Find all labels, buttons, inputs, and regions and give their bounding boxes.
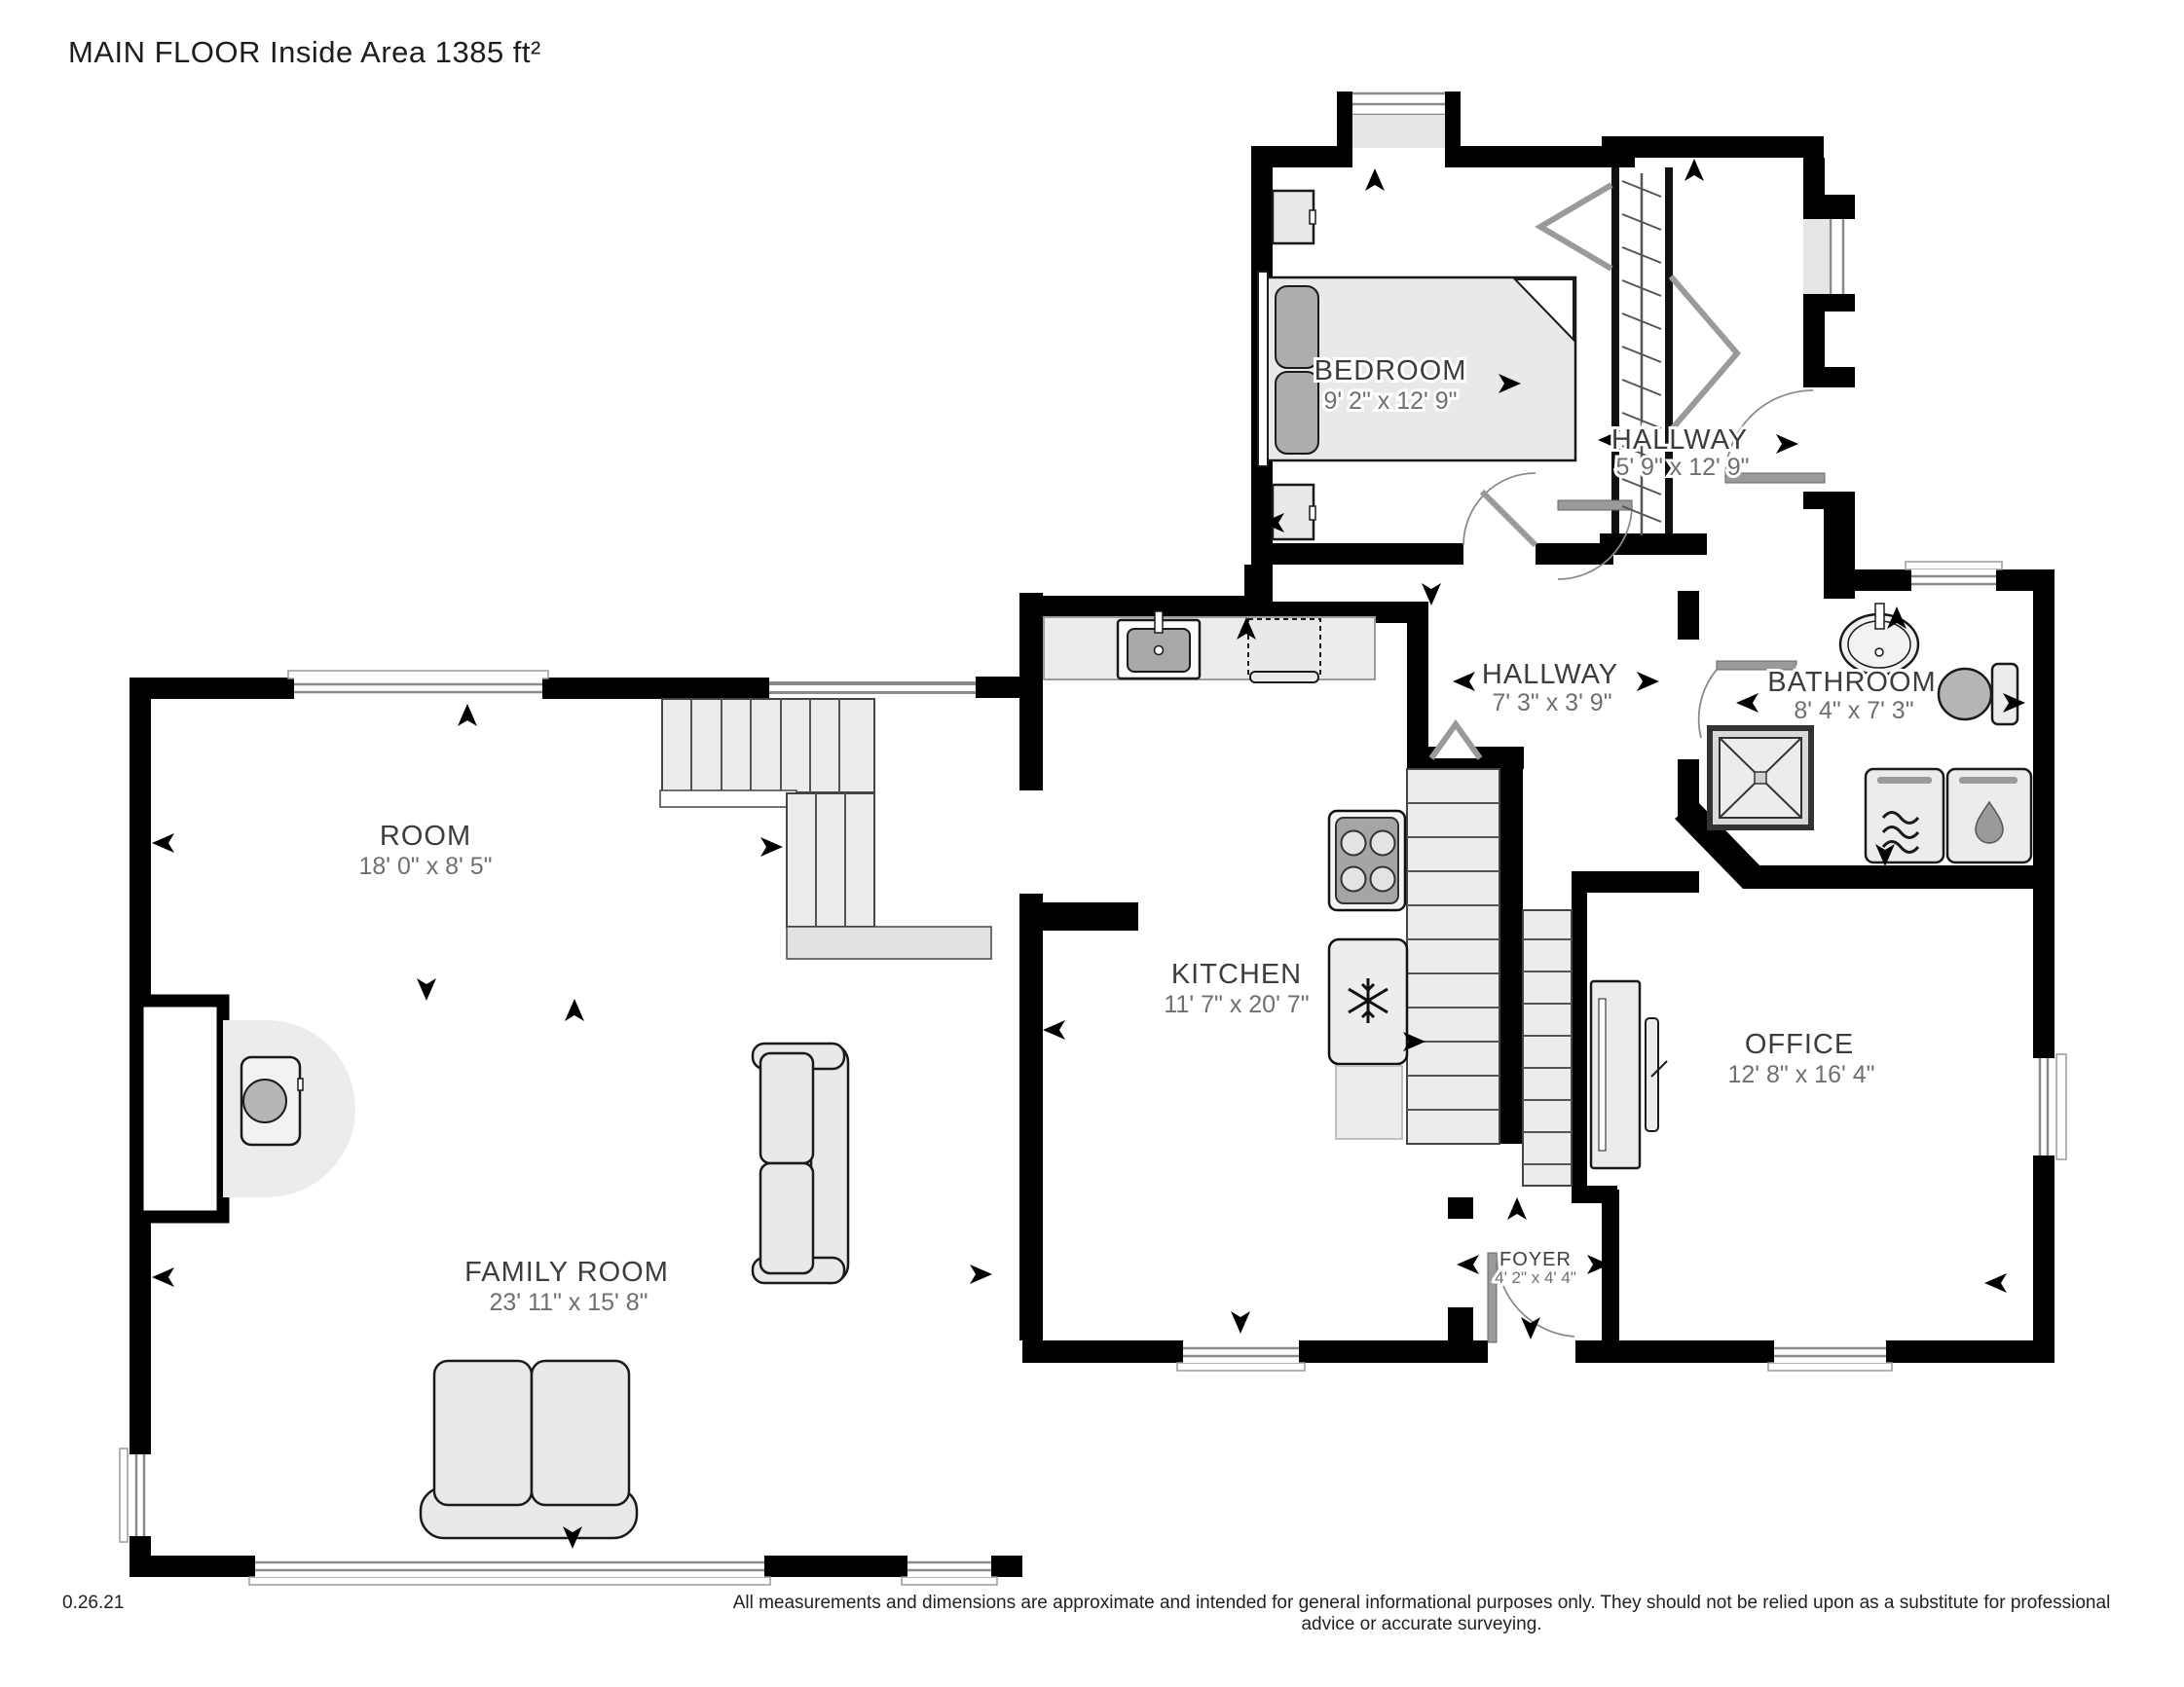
foyer-label: FOYER [1499,1249,1572,1270]
wood-stove [241,1057,303,1145]
family-room-dims: 23' 11" x 15' 8" [489,1289,648,1316]
office-dims: 12' 8" x 16' 4" [1727,1061,1874,1088]
stove [1329,811,1405,910]
hallway-closet-bifold [1671,276,1737,430]
entry-door-leaf [1488,1253,1497,1342]
kitchen-counter [1044,617,1375,679]
bathroom-dims: 8' 4" x 7' 3" [1794,697,1913,724]
bathroom-sink [1840,604,1918,675]
faucet-icon [1155,611,1163,633]
stair-railing [769,681,976,685]
main-staircase [660,681,991,959]
family-room-label: FAMILY ROOM [464,1257,669,1288]
counter-section [1336,1066,1402,1139]
burner-icon [1342,831,1366,856]
sofa-vertical [753,1044,848,1283]
toilet [1939,664,2017,724]
hallway-upper-dims: 5' 9" x 12' 9" [1615,454,1749,481]
bedroom-label: BEDROOM [1314,355,1467,386]
nightstand [1273,485,1314,539]
bedroom-closet-bifold [1540,185,1611,269]
fireplace-bay [137,1001,223,1217]
office-label: OFFICE [1745,1029,1854,1060]
basement-staircase [1407,769,1572,1186]
closet-hangers [1622,173,1661,535]
bedroom-dims: 9' 2" x 12' 9" [1323,387,1457,415]
sofa-horizontal [421,1361,637,1538]
room-label: ROOM [380,821,471,852]
office-furniture [1591,981,1667,1168]
piano-bench [1646,1018,1658,1131]
dryer [1947,769,2031,862]
foyer-dims: 4' 2" x 4' 4" [1495,1268,1576,1287]
piano [1591,981,1667,1168]
floorplan-page: MAIN FLOOR Inside Area 1385 ft² [0,0,2184,1687]
nightstand [1273,191,1314,243]
kitchen-fixtures [1044,611,1407,1139]
floorplan-drawing: BEDROOM 9' 2" x 12' 9" HALLWAY 5' 9" x 1… [0,0,2184,1687]
footer-disclaimer: All measurements and dimensions are appr… [721,1593,2123,1635]
room-dims: 18' 0" x 8' 5" [358,853,492,880]
kitchen-label: KITCHEN [1171,959,1302,990]
hallway-main-dims: 7' 3" x 3' 9" [1492,689,1611,716]
bathroom-fixtures [1710,604,2031,862]
bathroom-label: BATHROOM [1767,667,1936,698]
hallway-upper-label: HALLWAY [1611,424,1748,456]
pillow [1276,372,1318,454]
dishwasher [1248,619,1320,682]
refrigerator [1329,939,1407,1064]
shower [1710,728,1811,827]
pillow [1276,286,1318,368]
hallway-main-label: HALLWAY [1482,659,1618,690]
kitchen-dims: 11' 7" x 20' 7" [1164,991,1309,1018]
footer-date-code: 0.26.21 [62,1593,124,1614]
